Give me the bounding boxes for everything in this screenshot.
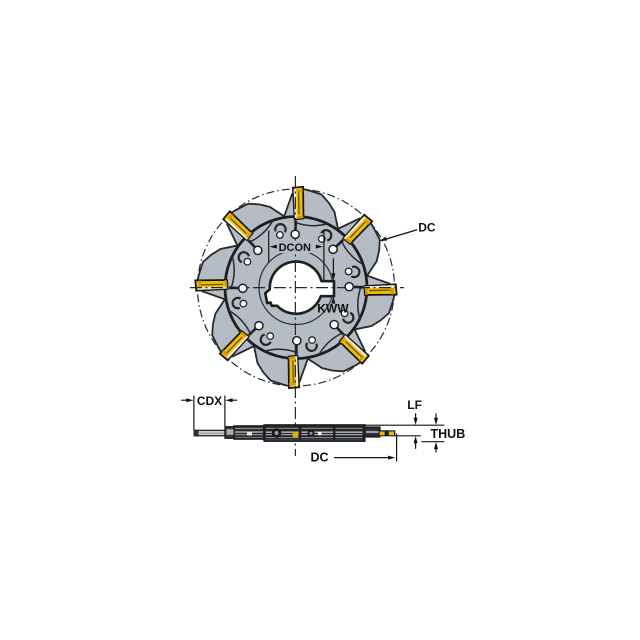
svg-text:KWW: KWW	[317, 302, 349, 316]
svg-text:DCON: DCON	[279, 242, 311, 254]
svg-text:DC: DC	[418, 221, 436, 235]
svg-text:CDX: CDX	[197, 394, 222, 408]
svg-text:LF: LF	[407, 398, 422, 412]
svg-text:DC: DC	[311, 451, 329, 465]
svg-text:THUB: THUB	[431, 427, 466, 441]
